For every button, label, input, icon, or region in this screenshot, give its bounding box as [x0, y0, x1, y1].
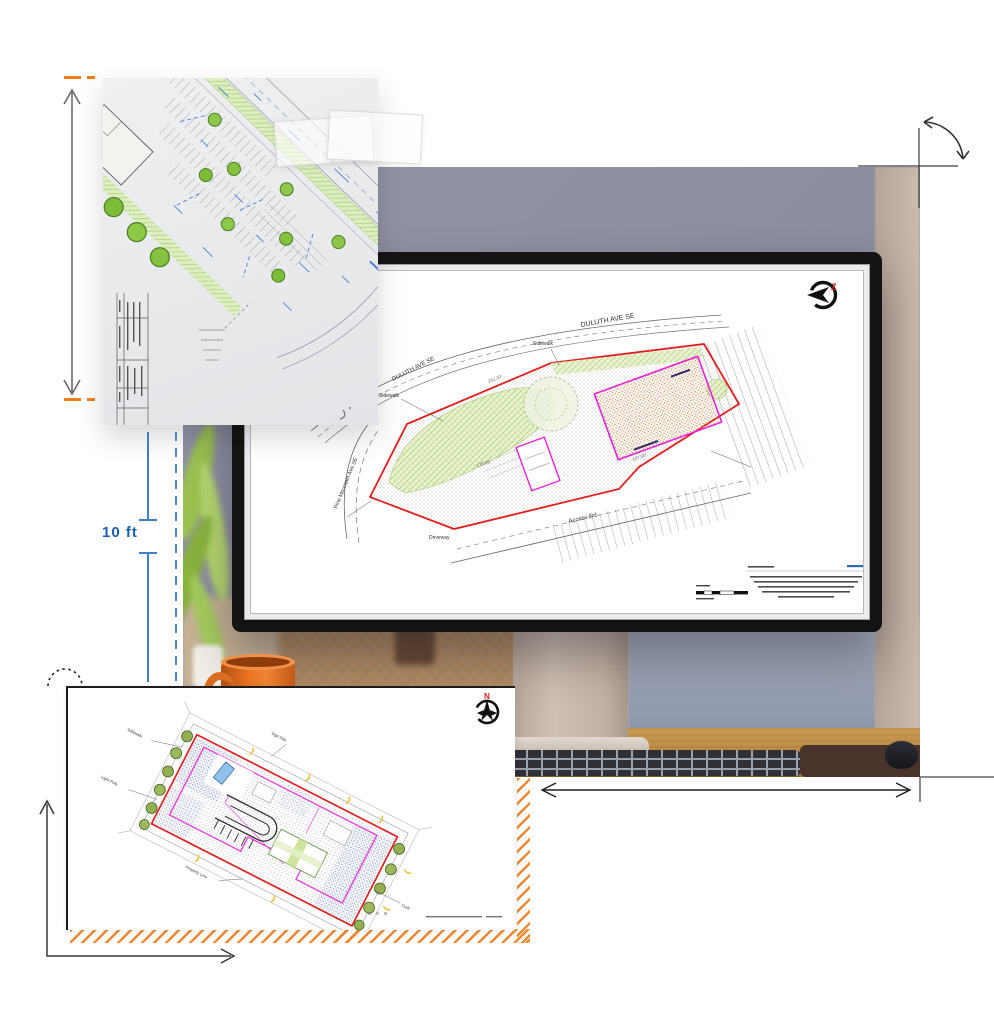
scale-bar — [696, 585, 748, 599]
orange-tick — [64, 398, 81, 401]
distance-label: 10 ft — [102, 524, 150, 541]
tape-strip — [327, 110, 423, 165]
rotation-arrow-icon — [924, 122, 963, 159]
sidewalk-label-b: Sidewalk — [533, 341, 554, 347]
orange-tick — [87, 76, 95, 79]
label-curb: Curb — [401, 903, 412, 912]
dimension-line-solid — [147, 432, 149, 520]
monitor-plan-graphics: DULUTH AVE SE DULUTH AVE SE Pine Mountai… — [311, 313, 811, 564]
detail-sketch — [199, 302, 351, 419]
driveway-label: Driveway — [429, 535, 450, 541]
dimension-line-solid — [147, 553, 149, 682]
paper-sketch-topleft — [103, 78, 378, 425]
title-block — [117, 293, 148, 425]
sheet-footer-text — [368, 912, 502, 917]
origin-axes — [25, 788, 250, 978]
corner-arc — [44, 662, 88, 690]
street-label-top: DULUTH AVE SE — [580, 313, 635, 329]
north-compass-icon-bottom: N — [472, 692, 502, 727]
rotation-guide — [850, 95, 994, 215]
label-sidewalk: Sidewalk — [127, 727, 144, 739]
sidewalk-label-a: Sidewalk — [379, 393, 400, 399]
glass-panel — [628, 625, 875, 731]
compass-letter-z: Z — [831, 282, 837, 292]
mouse — [885, 741, 918, 769]
vertical-extent-arrow — [56, 62, 92, 412]
orange-tick — [64, 76, 81, 79]
poster-canvas: DULUTH AVE SE DULUTH AVE SE Pine Mountai… — [0, 0, 994, 1024]
dim-label-1: 201.32' — [488, 374, 504, 384]
label-lightpole: Light Pole — [100, 774, 119, 787]
notes-block — [746, 565, 863, 598]
orange-tick — [87, 398, 95, 401]
dimension-tick — [139, 519, 157, 521]
label-sign: Sign Dist — [271, 731, 288, 743]
photo-edge-guide-h — [920, 776, 994, 778]
north-compass-icon: Z — [805, 277, 840, 312]
dimension-tick — [139, 552, 157, 554]
dimension-line-dashed — [175, 432, 177, 684]
compass-letter-n: N — [484, 692, 490, 701]
horizontal-extent-arrow — [528, 772, 994, 812]
monitor-stand — [513, 629, 628, 747]
photo-edge-guide-v — [919, 777, 921, 802]
street-label-left: Pine Mountain Ave SE — [333, 457, 359, 510]
